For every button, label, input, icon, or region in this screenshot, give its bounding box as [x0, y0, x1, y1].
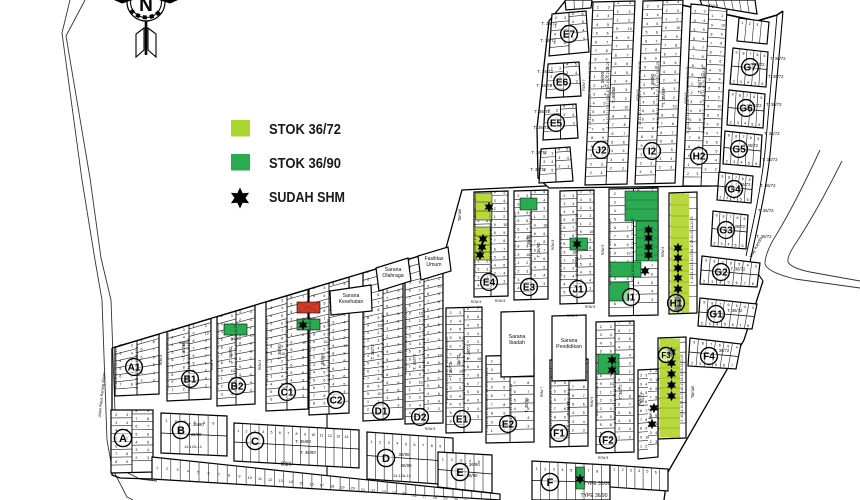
svg-text:3: 3 [313, 294, 315, 298]
svg-text:8: 8 [239, 342, 241, 346]
svg-text:9: 9 [494, 223, 496, 227]
svg-text:8: 8 [563, 242, 565, 246]
svg-text:T. 36/72: T. 36/72 [762, 157, 778, 162]
svg-text:8: 8 [438, 300, 440, 304]
svg-text:7: 7 [614, 235, 616, 239]
svg-text:9: 9 [290, 341, 292, 345]
svg-text:2: 2 [313, 355, 315, 359]
svg-text:9 -10-11-12-13-14-15-16-17-18-: 9 -10-11-12-13-14-15-16-17-18-19-20-21-2… [422, 309, 426, 376]
svg-text:7: 7 [698, 127, 700, 131]
svg-text:T. 36/72: T. 36/72 [730, 267, 746, 272]
svg-text:2: 2 [590, 162, 592, 166]
svg-text:7: 7 [572, 226, 574, 230]
svg-text:3: 3 [367, 278, 369, 282]
svg-text:3: 3 [397, 404, 399, 408]
svg-text:4: 4 [596, 23, 598, 27]
svg-text:7: 7 [618, 321, 620, 325]
svg-text:8: 8 [711, 302, 713, 306]
svg-text:5: 5 [377, 354, 379, 358]
svg-text:5: 5 [618, 411, 620, 415]
svg-text:3: 3 [517, 278, 519, 282]
svg-text:ROW 8: ROW 8 [598, 456, 609, 460]
svg-text:7: 7 [477, 382, 479, 386]
svg-text:5: 5 [409, 350, 411, 354]
svg-text:3: 3 [221, 322, 223, 326]
svg-text:8: 8 [711, 32, 713, 36]
svg-text:9: 9 [367, 392, 369, 396]
svg-text:3: 3 [572, 420, 574, 424]
svg-text:G4: G4 [727, 185, 741, 196]
svg-text:8: 8 [723, 214, 725, 218]
svg-text:9: 9 [732, 93, 734, 97]
svg-text:14-12A-12: 14-12A-12 [184, 445, 202, 449]
svg-text:4: 4 [427, 392, 429, 396]
svg-text:5: 5 [719, 68, 721, 72]
svg-text:5: 5 [290, 302, 292, 306]
svg-text:5: 5 [193, 362, 195, 366]
svg-text:4: 4 [332, 382, 334, 386]
svg-text:3: 3 [221, 392, 223, 396]
svg-text:4: 4 [313, 371, 315, 375]
svg-text:5: 5 [239, 365, 241, 369]
svg-text:24: 24 [392, 491, 396, 495]
svg-text:5: 5 [614, 218, 616, 222]
svg-text:4: 4 [323, 294, 325, 298]
svg-text:I2: I2 [648, 147, 657, 158]
svg-text:3: 3 [486, 268, 488, 272]
svg-text:6: 6 [583, 403, 585, 407]
svg-text:7: 7 [623, 132, 625, 136]
svg-text:6: 6 [645, 400, 647, 404]
svg-text:3: 3 [715, 168, 717, 172]
svg-text:17: 17 [320, 484, 324, 488]
svg-text:4: 4 [629, 1, 631, 5]
svg-text:E7: E7 [563, 30, 576, 41]
svg-text:5: 5 [748, 161, 750, 165]
svg-text:6: 6 [397, 381, 399, 385]
svg-text:6: 6 [419, 350, 421, 354]
svg-text:6: 6 [193, 354, 195, 358]
svg-text:5: 5 [583, 411, 585, 415]
svg-text:1: 1 [640, 444, 642, 448]
svg-text:6: 6 [699, 118, 701, 122]
svg-text:10: 10 [627, 251, 631, 255]
svg-text:8: 8 [650, 387, 652, 391]
svg-text:3: 3 [643, 92, 645, 96]
svg-text:5: 5 [600, 423, 602, 427]
svg-text:5: 5 [699, 109, 701, 113]
svg-text:1: 1 [332, 336, 334, 340]
svg-text:3: 3 [534, 274, 536, 278]
svg-text:9: 9 [238, 475, 240, 479]
svg-text:13: 13 [336, 434, 340, 438]
svg-text:7: 7 [409, 365, 411, 369]
svg-text:5: 5 [760, 96, 762, 100]
svg-text:6: 6 [302, 371, 304, 375]
svg-text:7: 7 [171, 365, 173, 369]
svg-text:3: 3 [239, 310, 241, 314]
svg-text:4: 4 [589, 206, 591, 210]
svg-text:6: 6 [645, 39, 647, 43]
svg-text:5: 5 [592, 110, 594, 114]
svg-text:9: 9 [693, 341, 695, 345]
svg-text:4: 4 [491, 377, 493, 381]
svg-text:7: 7 [645, 48, 647, 52]
svg-text:8: 8 [747, 324, 749, 328]
svg-text:8: 8 [644, 57, 646, 61]
svg-text:D: D [382, 453, 390, 465]
svg-text:9 -10-11-12-13-14-15-16-17-18-: 9 -10-11-12-13-14-15-16-17-18-19-20-21-2… [285, 320, 289, 387]
svg-text:5: 5 [427, 315, 429, 319]
svg-text:4: 4 [646, 22, 648, 26]
svg-text:8: 8 [431, 444, 433, 448]
svg-text:2: 2 [419, 388, 421, 392]
svg-text:6: 6 [409, 357, 411, 361]
svg-text:2: 2 [386, 335, 388, 339]
svg-text:4: 4 [567, 156, 569, 160]
svg-text:E3: E3 [523, 283, 536, 294]
svg-text:10: 10 [248, 476, 252, 480]
svg-text:E: E [456, 467, 463, 479]
svg-text:6: 6 [526, 219, 528, 223]
svg-text:3: 3 [147, 456, 149, 460]
svg-text:3: 3 [625, 88, 627, 92]
svg-text:7: 7 [221, 353, 223, 357]
svg-text:5: 5 [517, 219, 519, 223]
svg-text:2: 2 [749, 22, 751, 26]
svg-text:4: 4 [601, 171, 603, 175]
svg-text:2: 2 [625, 97, 627, 101]
svg-text:7: 7 [409, 296, 411, 300]
svg-text:5: 5 [709, 59, 711, 63]
svg-text:9: 9 [419, 304, 421, 308]
svg-text:9 -10-11-12-13-14-15-16-17-18-: 9 -10-11-12-13-14-15-16-17-18-19-20-21-2… [608, 218, 612, 285]
svg-text:9 -10-11-12-13-14-15-16-17-18-: 9 -10-11-12-13-14-15-16-17-18-19-20-21-2… [381, 314, 385, 381]
svg-text:2: 2 [427, 338, 429, 342]
svg-text:D2: D2 [414, 413, 427, 424]
svg-text:2: 2 [409, 327, 411, 331]
svg-text:5: 5 [582, 20, 584, 24]
svg-text:2: 2 [618, 435, 620, 439]
svg-text:9 -10-11-12-13-14-15-16-17-18-: 9 -10-11-12-13-14-15-16-17-18-19-20-21-2… [513, 211, 517, 278]
svg-text:6: 6 [450, 344, 452, 348]
svg-text:3: 3 [450, 319, 452, 323]
svg-text:2: 2 [691, 91, 693, 95]
svg-text:4: 4 [419, 403, 421, 407]
svg-text:5: 5 [438, 392, 440, 396]
svg-text:3: 3 [601, 162, 603, 166]
svg-text:ROW 8: ROW 8 [567, 314, 578, 318]
svg-text:9: 9 [703, 301, 705, 305]
svg-text:4: 4 [572, 20, 574, 24]
svg-text:6: 6 [459, 336, 461, 340]
svg-text:9: 9 [650, 378, 652, 382]
svg-text:9: 9 [193, 332, 195, 336]
svg-text:9: 9 [672, 113, 674, 117]
svg-text:9 -10-11-12-13-14-15-16-17-18-: 9 -10-11-12-13-14-15-16-17-18-19-20-21-2… [362, 312, 366, 379]
svg-text:9: 9 [651, 135, 653, 139]
svg-text:7: 7 [386, 297, 388, 301]
svg-text:2: 2 [467, 340, 469, 344]
svg-text:3: 3 [377, 339, 379, 343]
svg-text:5: 5 [250, 373, 252, 377]
svg-text:3: 3 [205, 384, 207, 388]
svg-text:9 -10-11-12-13-14-15-16-17-18-: 9 -10-11-12-13-14-15-16-17-18-19-20-21-2… [445, 336, 449, 403]
svg-text:4: 4 [450, 403, 452, 407]
svg-text:9: 9 [645, 427, 647, 431]
svg-text:8: 8 [503, 403, 505, 407]
svg-text:9: 9 [616, 27, 618, 31]
svg-text:5: 5 [459, 403, 461, 407]
svg-text:8: 8 [494, 231, 496, 235]
svg-text:T. 36/72: T. 36/72 [760, 183, 776, 188]
svg-text:1: 1 [156, 466, 158, 470]
svg-text:6: 6 [693, 46, 695, 50]
svg-text:4: 4 [744, 305, 746, 309]
svg-text:9: 9 [386, 350, 388, 354]
svg-text:6: 6 [742, 244, 744, 248]
svg-text:4: 4 [386, 388, 388, 392]
svg-text:36/90: 36/90 [401, 463, 413, 468]
svg-text:4: 4 [477, 407, 479, 411]
svg-text:7: 7 [119, 383, 121, 387]
svg-text:5: 5 [477, 324, 479, 328]
svg-text:5: 5 [629, 419, 631, 423]
svg-text:6: 6 [332, 367, 334, 371]
svg-text:5: 5 [459, 328, 461, 332]
svg-text:7: 7 [735, 176, 737, 180]
svg-text:6: 6 [323, 378, 325, 382]
svg-text:3: 3 [477, 276, 479, 280]
svg-text:5: 5 [572, 210, 574, 214]
svg-text:3: 3 [543, 282, 545, 286]
svg-text:T. 36/90: T. 36/90 [300, 450, 316, 455]
svg-text:4: 4 [562, 468, 564, 472]
svg-text:5: 5 [438, 323, 440, 327]
svg-text:4: 4 [409, 342, 411, 346]
svg-text:4: 4 [126, 421, 128, 425]
svg-text:8: 8 [629, 321, 631, 325]
svg-text:4: 4 [467, 324, 469, 328]
svg-text:2: 2 [572, 429, 574, 433]
svg-text:4: 4 [563, 283, 565, 287]
svg-text:8: 8 [503, 239, 505, 243]
svg-text:3: 3 [343, 328, 345, 332]
svg-text:6: 6 [758, 123, 760, 127]
svg-text:7: 7 [427, 369, 429, 373]
svg-text:27: 27 [423, 494, 427, 498]
svg-text:6: 6 [281, 322, 283, 326]
svg-text:5: 5 [656, 22, 658, 26]
svg-text:5: 5 [618, 337, 620, 341]
svg-text:3: 3 [119, 352, 121, 356]
svg-text:3: 3 [177, 468, 179, 472]
svg-text:6: 6 [270, 398, 272, 402]
svg-text:4: 4 [131, 352, 133, 356]
svg-text:6: 6 [119, 375, 121, 379]
svg-text:2: 2 [593, 84, 595, 88]
svg-text:4: 4 [517, 286, 519, 290]
svg-text:6: 6 [761, 82, 763, 86]
svg-text:9: 9 [691, 73, 693, 77]
svg-text:6: 6 [377, 293, 379, 297]
svg-text:6: 6 [642, 118, 644, 122]
svg-text:9: 9 [606, 58, 608, 62]
svg-text:3: 3 [386, 327, 388, 331]
svg-text:2: 2 [459, 378, 461, 382]
svg-text:1: 1 [600, 390, 602, 394]
svg-text:5: 5 [367, 362, 369, 366]
svg-text:7: 7 [332, 359, 334, 363]
svg-text:7: 7 [640, 418, 642, 422]
svg-text:8: 8 [702, 342, 704, 346]
svg-text:6: 6 [706, 132, 708, 136]
svg-text:36/74: 36/74 [649, 410, 653, 420]
svg-text:4: 4 [715, 159, 717, 163]
svg-text:1: 1 [616, 19, 618, 23]
svg-text:3: 3 [572, 194, 574, 198]
svg-text:I1: I1 [627, 293, 636, 304]
svg-text:1: 1 [741, 21, 743, 25]
svg-text:4: 4 [302, 386, 304, 390]
svg-text:2: 2 [451, 458, 453, 462]
svg-text:7: 7 [543, 249, 545, 253]
svg-text:9 -10-11-12-13-14-15-16-17-18-: 9 -10-11-12-13-14-15-16-17-18-19-20-21-2… [327, 318, 331, 385]
svg-text:6: 6 [652, 109, 654, 113]
svg-text:9: 9 [613, 106, 615, 110]
svg-text:9: 9 [641, 144, 643, 148]
svg-text:7: 7 [115, 452, 117, 456]
svg-text:8: 8 [270, 344, 272, 348]
svg-text:7: 7 [627, 53, 629, 57]
svg-text:8: 8 [323, 325, 325, 329]
svg-text:4: 4 [572, 202, 574, 206]
svg-text:2: 2 [526, 261, 528, 265]
svg-text:6: 6 [503, 255, 505, 259]
svg-text:3: 3 [460, 459, 462, 463]
svg-text:5: 5 [135, 433, 137, 437]
svg-text:15: 15 [299, 481, 303, 485]
svg-text:1: 1 [290, 333, 292, 337]
svg-text:10: 10 [655, 378, 659, 382]
svg-text:ROW 8: ROW 8 [425, 427, 436, 431]
svg-text:6: 6 [563, 226, 565, 230]
svg-text:3: 3 [657, 4, 659, 8]
svg-text:8: 8 [397, 297, 399, 301]
svg-text:6: 6 [618, 403, 620, 407]
svg-text:5: 5 [646, 31, 648, 35]
svg-text:3: 3 [699, 362, 701, 366]
svg-text:4: 4 [153, 371, 155, 375]
svg-text:10: 10 [438, 354, 442, 358]
svg-text:9 -10-11-12-13-14-15-16-17-18-: 9 -10-11-12-13-14-15-16-17-18-19-20-21-2… [631, 218, 635, 285]
svg-text:5: 5 [197, 470, 199, 474]
svg-text:1: 1 [644, 74, 646, 78]
svg-text:6: 6 [592, 119, 594, 123]
svg-text:7: 7 [459, 344, 461, 348]
svg-text:9: 9 [397, 289, 399, 293]
svg-text:6: 6 [614, 226, 616, 230]
svg-text:3: 3 [313, 363, 315, 367]
svg-text:6: 6 [603, 110, 605, 114]
svg-text:6: 6 [427, 307, 429, 311]
svg-text:5: 5 [626, 71, 628, 75]
svg-text:7: 7 [377, 300, 379, 304]
svg-text:4: 4 [147, 448, 149, 452]
svg-text:C1: C1 [281, 388, 294, 399]
svg-text:5: 5 [715, 150, 717, 154]
svg-text:3: 3 [670, 166, 672, 170]
svg-text:ROW 8: ROW 8 [471, 300, 482, 304]
svg-text:3: 3 [567, 164, 569, 168]
svg-text:T. 36/72: T. 36/72 [618, 384, 623, 400]
svg-text:2: 2 [166, 467, 168, 471]
svg-text:ROW 8: ROW 8 [661, 247, 665, 258]
svg-text:4: 4 [409, 411, 411, 415]
svg-text:4: 4 [551, 160, 553, 164]
svg-text:3: 3 [614, 277, 616, 281]
svg-text:3: 3 [491, 368, 493, 372]
svg-text:5: 5 [419, 342, 421, 346]
svg-text:Taman: Taman [690, 385, 695, 398]
svg-text:4: 4 [610, 333, 612, 337]
svg-text:3: 3 [543, 207, 545, 211]
svg-text:F1: F1 [553, 429, 565, 440]
svg-text:3: 3 [610, 158, 612, 162]
svg-text:6: 6 [450, 419, 452, 423]
svg-text:3: 3 [622, 167, 624, 171]
svg-text:4: 4 [205, 377, 207, 381]
svg-text:2: 2 [270, 299, 272, 303]
svg-text:5: 5 [728, 281, 730, 285]
svg-text:9 -10-11-12-13-14-15-16-17-18-: 9 -10-11-12-13-14-15-16-17-18-19-20-21-2… [680, 354, 684, 421]
svg-text:3: 3 [131, 344, 133, 348]
svg-text:4: 4 [747, 81, 749, 85]
svg-text:3: 3 [721, 242, 723, 246]
svg-text:10: 10 [503, 223, 507, 227]
svg-text:3: 3 [323, 286, 325, 290]
svg-text:6: 6 [572, 218, 574, 222]
svg-text:2: 2 [517, 194, 519, 198]
svg-text:5: 5 [405, 442, 407, 446]
svg-text:6: 6 [610, 349, 612, 353]
svg-text:Kesehatan: Kesehatan [339, 299, 364, 305]
svg-text:10: 10 [377, 392, 381, 396]
svg-text:3: 3 [593, 93, 595, 97]
svg-text:4: 4 [534, 265, 536, 269]
svg-text:4: 4 [477, 332, 479, 336]
svg-text:5: 5 [397, 388, 399, 392]
svg-text:7: 7 [652, 118, 654, 122]
svg-text:7: 7 [627, 226, 629, 230]
svg-text:8: 8 [591, 136, 593, 140]
svg-text:7: 7 [716, 132, 718, 136]
svg-text:3: 3 [459, 311, 461, 315]
svg-text:8: 8 [491, 412, 493, 416]
svg-text:6: 6 [656, 31, 658, 35]
svg-text:9: 9 [377, 316, 379, 320]
svg-text:T. 36/90: T. 36/90 [650, 73, 655, 90]
svg-text:3: 3 [503, 280, 505, 284]
svg-text:3: 3 [600, 407, 602, 411]
svg-text:7: 7 [606, 40, 608, 44]
svg-text:T. 36/72: T. 36/72 [536, 83, 552, 88]
svg-text:2: 2 [600, 399, 602, 403]
svg-text:6: 6 [615, 53, 617, 57]
svg-text:5: 5 [313, 378, 315, 382]
svg-text:4: 4 [367, 354, 369, 358]
svg-text:7: 7 [438, 377, 440, 381]
